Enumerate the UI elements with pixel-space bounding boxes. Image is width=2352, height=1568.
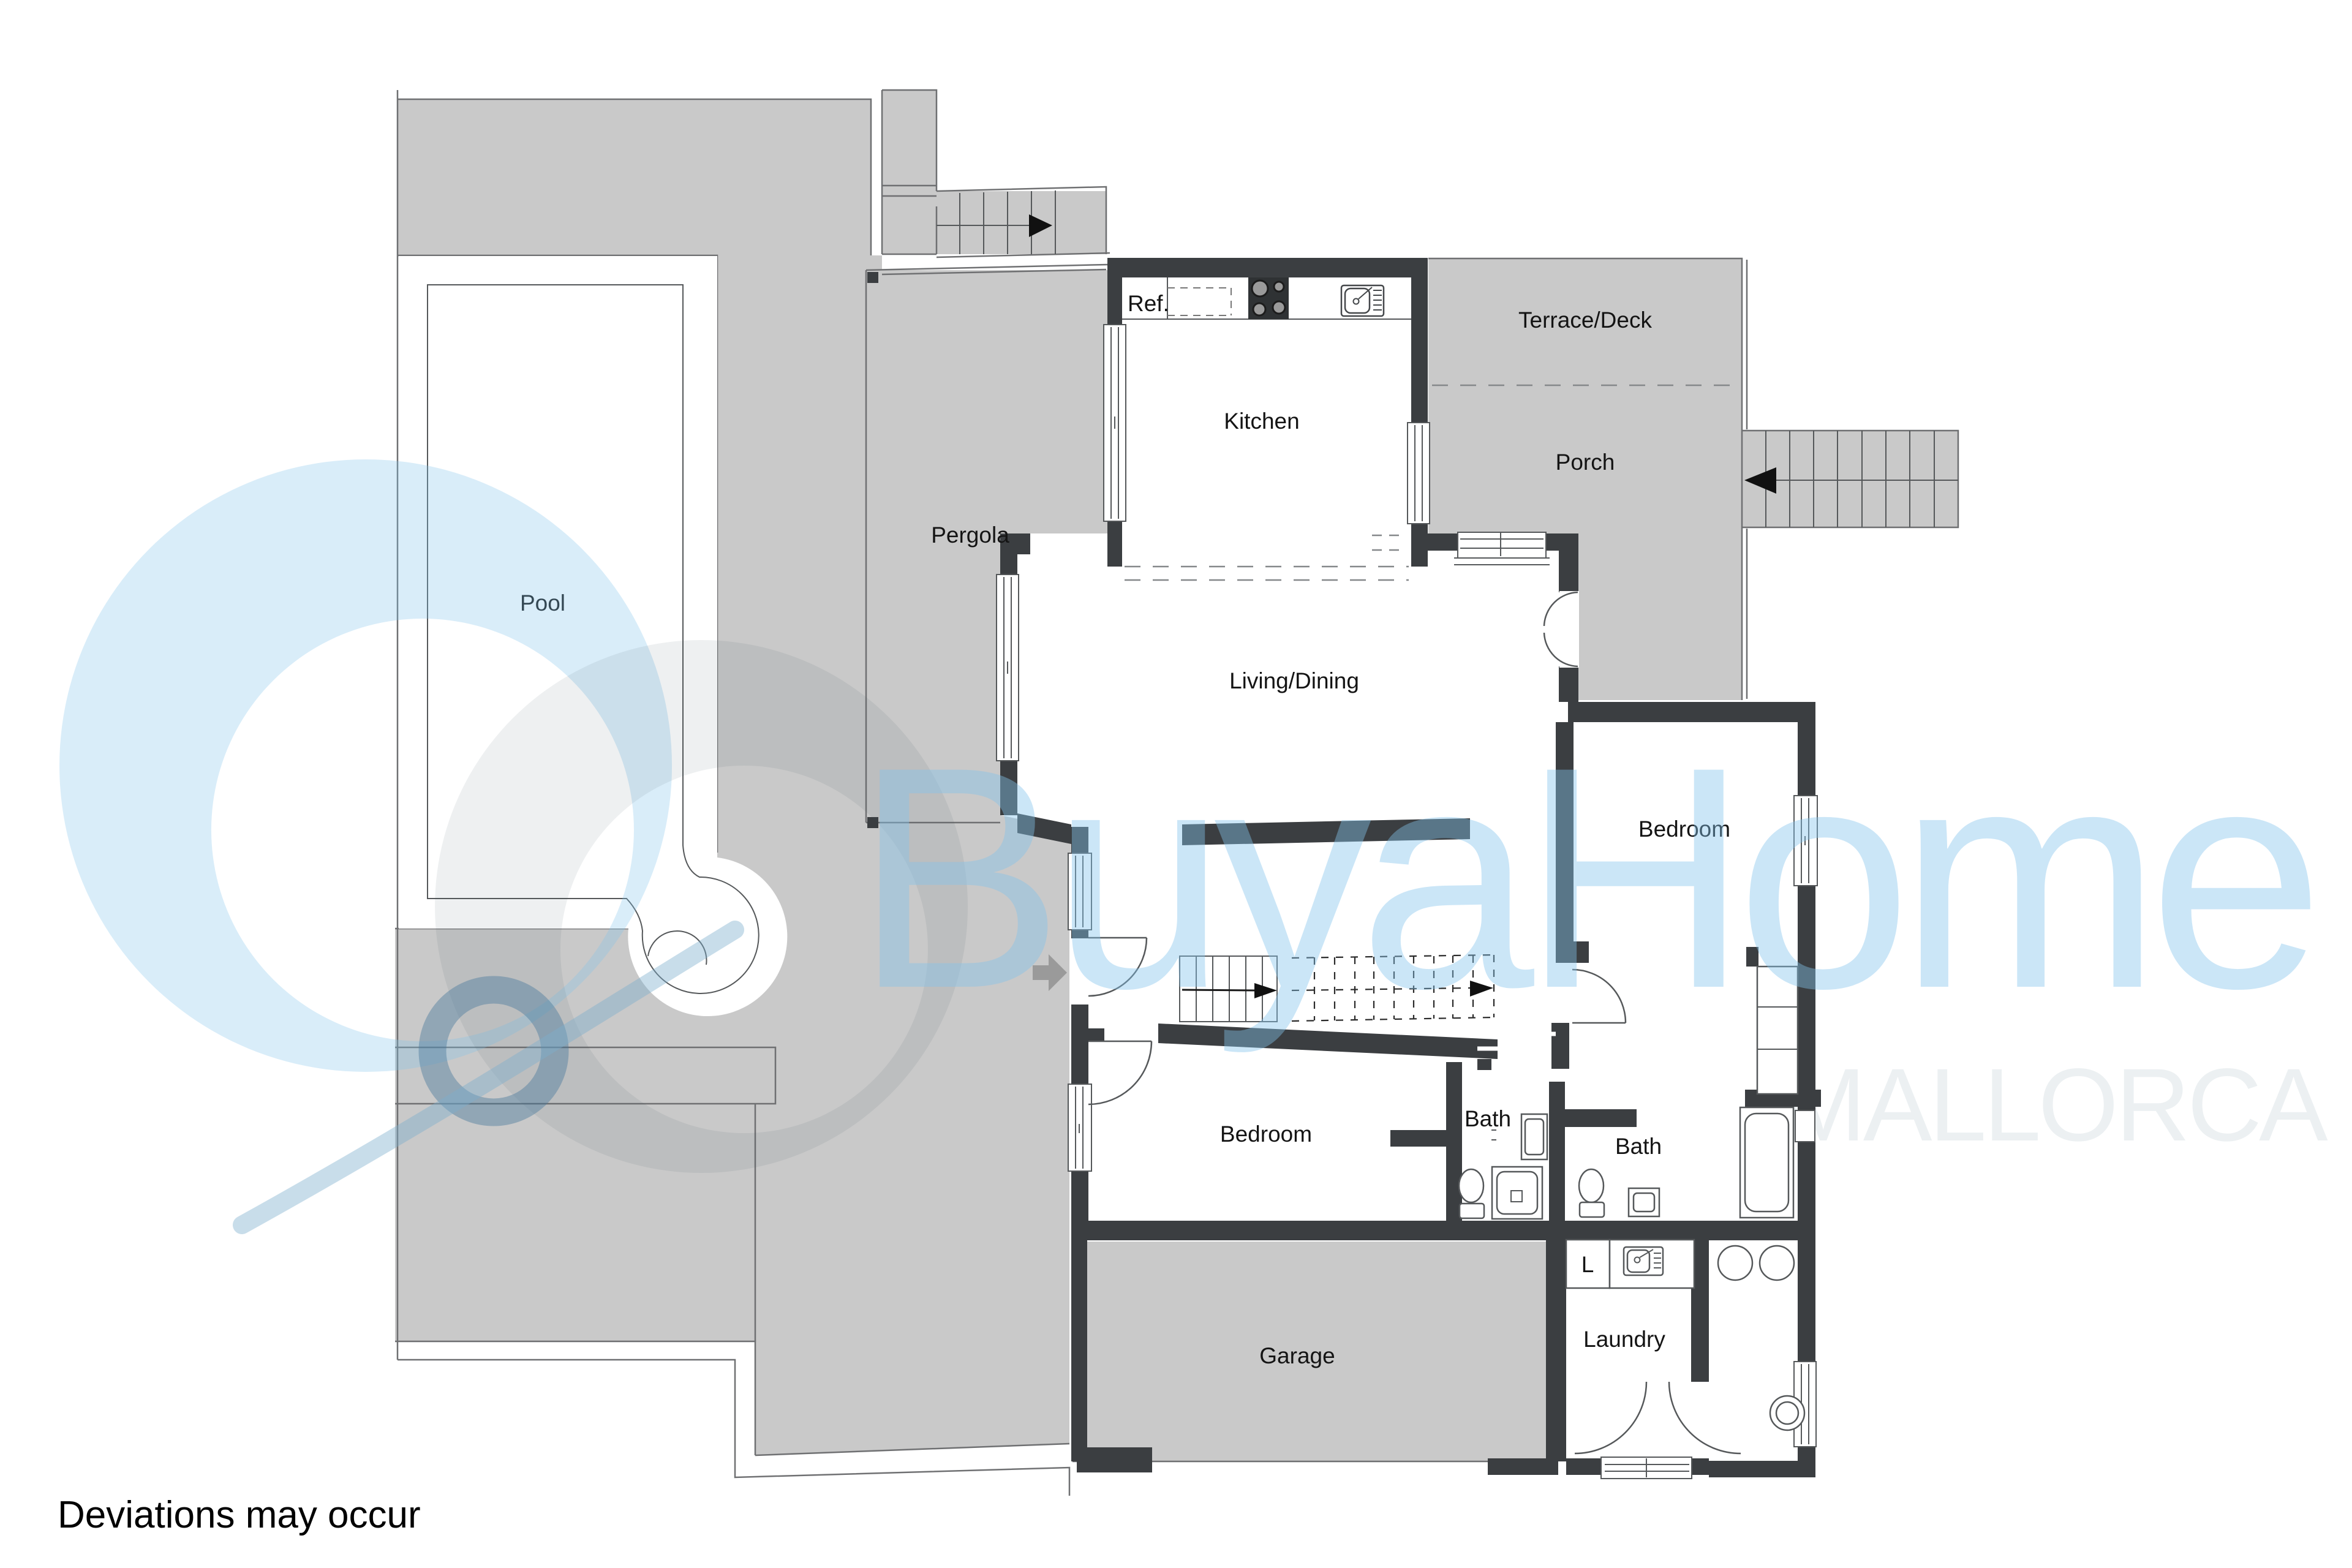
svg-text:Living/Dining: Living/Dining — [1229, 668, 1359, 693]
svg-text:Bedroom: Bedroom — [1220, 1121, 1312, 1147]
svg-text:Bath: Bath — [1464, 1106, 1511, 1131]
svg-text:Porch: Porch — [1556, 450, 1615, 475]
svg-text:Pergola: Pergola — [931, 522, 1009, 548]
svg-text:L: L — [1581, 1252, 1594, 1277]
svg-text:MALLORCA: MALLORCA — [1780, 1047, 2328, 1163]
svg-text:BuyaHome: BuyaHome — [854, 702, 2312, 1056]
svg-text:Garage: Garage — [1259, 1343, 1335, 1368]
svg-text:Bath: Bath — [1615, 1134, 1662, 1159]
svg-text:Kitchen: Kitchen — [1224, 409, 1299, 434]
svg-text:Deviations may occur: Deviations may occur — [58, 1494, 421, 1536]
svg-text:Terrace/Deck: Terrace/Deck — [1518, 307, 1652, 333]
svg-text:Laundry: Laundry — [1583, 1327, 1665, 1352]
svg-text:Ref.: Ref. — [1128, 291, 1169, 316]
